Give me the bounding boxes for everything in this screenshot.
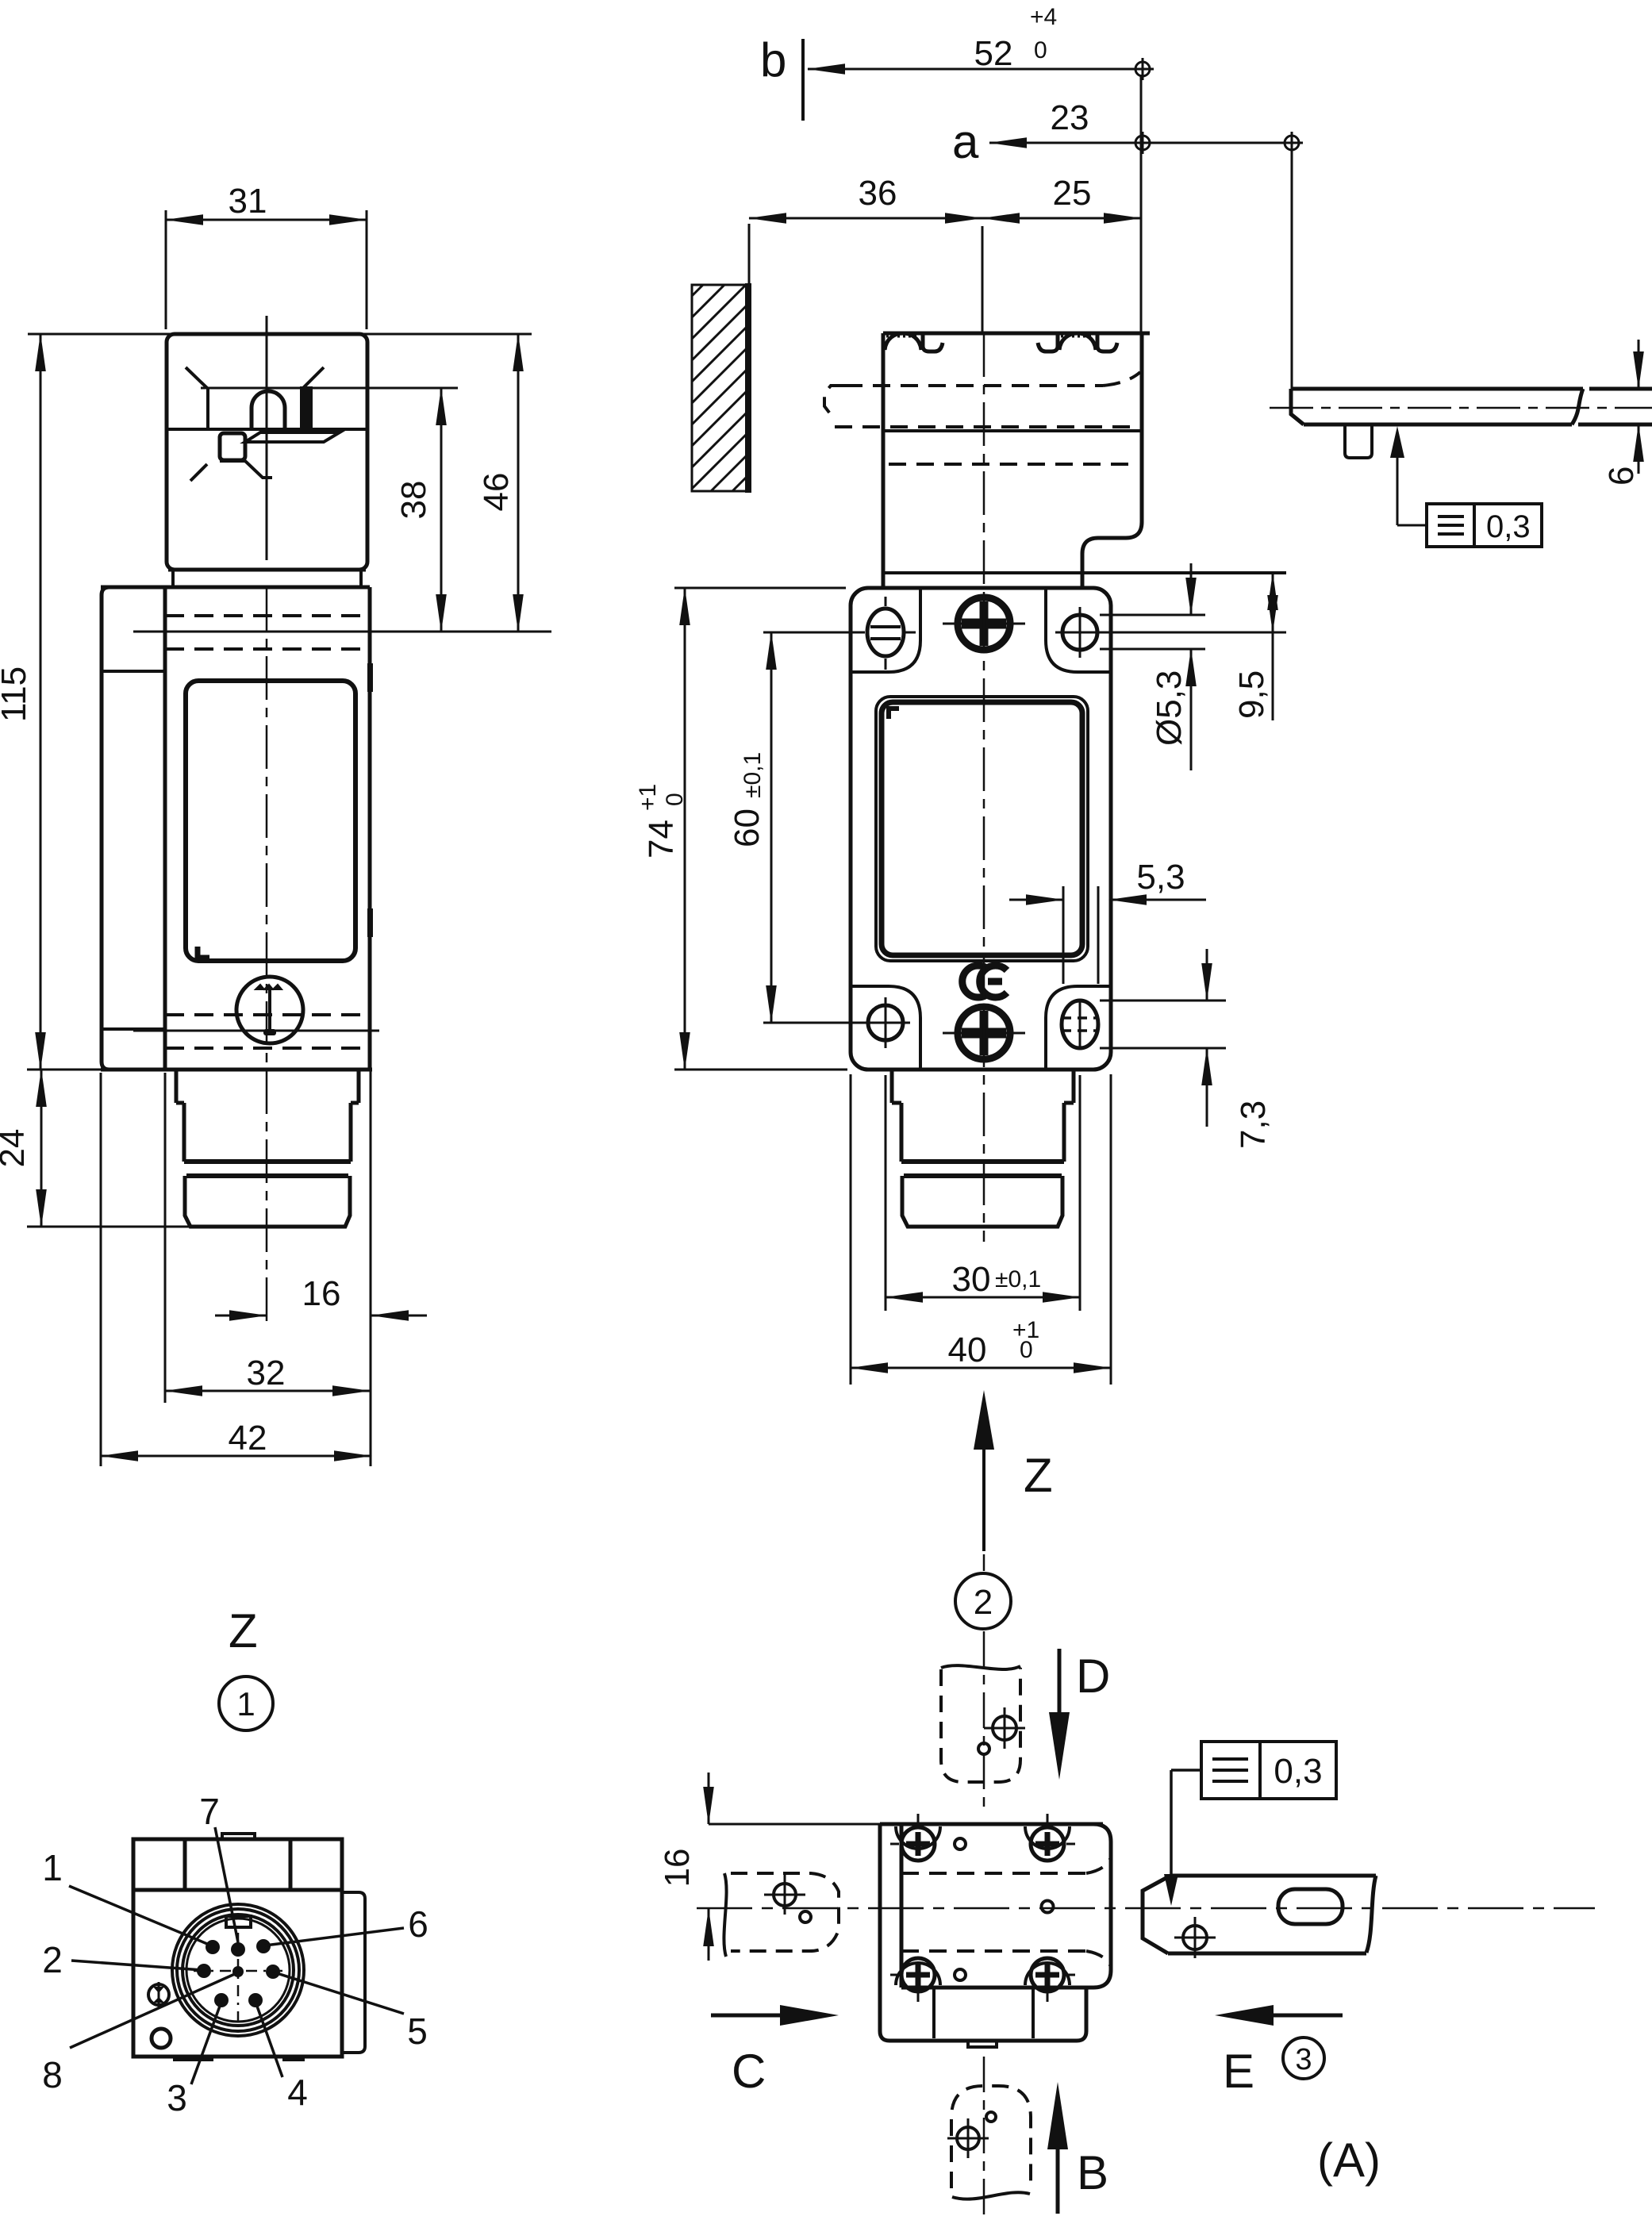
svg-text:0: 0 xyxy=(662,793,688,806)
svg-text:74: 74 xyxy=(642,820,681,858)
svg-text:16: 16 xyxy=(302,1274,341,1313)
svg-text:46: 46 xyxy=(477,473,516,512)
svg-text:3: 3 xyxy=(1295,2043,1312,2076)
svg-text:D: D xyxy=(1076,1650,1110,1703)
svg-text:31: 31 xyxy=(229,182,267,221)
svg-text:+1: +1 xyxy=(635,784,661,811)
svg-text:30: 30 xyxy=(952,1260,991,1299)
svg-text:±0,1: ±0,1 xyxy=(740,752,766,798)
svg-text:2: 2 xyxy=(42,1939,63,1980)
svg-text:8: 8 xyxy=(42,2054,63,2095)
svg-text:B: B xyxy=(1077,2146,1108,2199)
svg-text:115: 115 xyxy=(0,666,33,722)
svg-text:32: 32 xyxy=(247,1354,286,1392)
svg-text:40: 40 xyxy=(948,1331,987,1369)
svg-text:6: 6 xyxy=(408,1903,428,1945)
svg-text:0,3: 0,3 xyxy=(1274,1752,1322,1791)
svg-text:1: 1 xyxy=(42,1847,63,1888)
svg-text:a: a xyxy=(952,115,979,168)
svg-text:Z: Z xyxy=(229,1604,258,1657)
svg-text:Ø5,3: Ø5,3 xyxy=(1150,670,1189,746)
svg-text:C: C xyxy=(732,2045,766,2098)
svg-text:36: 36 xyxy=(859,174,897,213)
svg-text:0: 0 xyxy=(1020,1337,1033,1363)
svg-text:16: 16 xyxy=(658,1849,697,1888)
svg-text:25: 25 xyxy=(1053,174,1092,213)
svg-text:38: 38 xyxy=(394,481,433,520)
svg-text:23: 23 xyxy=(1051,98,1089,137)
svg-text:7,3: 7,3 xyxy=(1234,1100,1273,1149)
svg-text:b: b xyxy=(760,33,786,86)
svg-text:0,3: 0,3 xyxy=(1486,509,1531,544)
svg-text:6: 6 xyxy=(1602,467,1641,486)
svg-text:±0,1: ±0,1 xyxy=(995,1266,1041,1292)
svg-text:42: 42 xyxy=(229,1419,267,1458)
svg-text:52: 52 xyxy=(974,34,1013,73)
svg-text:5,3: 5,3 xyxy=(1136,858,1185,897)
svg-text:+4: +4 xyxy=(1030,4,1057,30)
svg-text:24: 24 xyxy=(0,1129,32,1168)
svg-text:7: 7 xyxy=(199,1791,220,1832)
svg-text:0: 0 xyxy=(1034,37,1047,63)
svg-text:60: 60 xyxy=(728,808,766,847)
svg-text:E: E xyxy=(1223,2045,1254,2098)
svg-text:9,5: 9,5 xyxy=(1232,670,1271,719)
svg-text:4: 4 xyxy=(287,2072,308,2113)
svg-text:Z: Z xyxy=(1024,1449,1053,1502)
svg-text:(A): (A) xyxy=(1317,2134,1381,2187)
svg-text:1: 1 xyxy=(236,1685,255,1723)
svg-text:3: 3 xyxy=(167,2077,187,2118)
svg-text:2: 2 xyxy=(974,1583,993,1622)
svg-text:5: 5 xyxy=(407,2011,428,2052)
